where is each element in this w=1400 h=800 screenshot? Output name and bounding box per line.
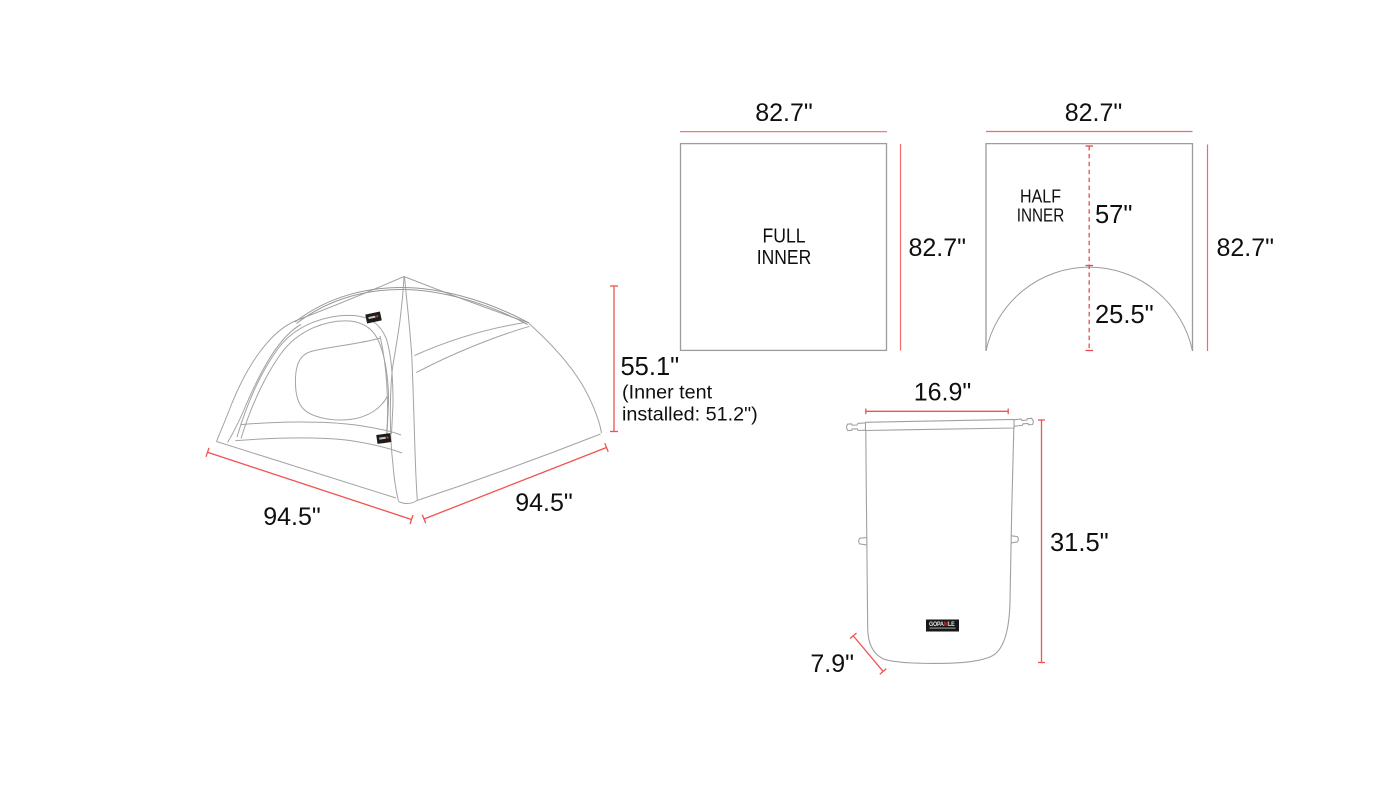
svg-text:31.5": 31.5" <box>1050 529 1109 557</box>
svg-text:82.7": 82.7" <box>909 234 967 262</box>
svg-text:82.7": 82.7" <box>755 99 813 127</box>
svg-text:FULL: FULL <box>763 226 806 248</box>
svg-text:(Inner tent: (Inner tent <box>622 382 713 404</box>
svg-text:82.7": 82.7" <box>1217 234 1275 262</box>
svg-text:installed: 51.2"): installed: 51.2") <box>622 403 758 425</box>
svg-text:INNER: INNER <box>1017 204 1065 225</box>
svg-text:57": 57" <box>1095 201 1132 229</box>
svg-text:94.5": 94.5" <box>515 489 573 517</box>
svg-text:25.5": 25.5" <box>1095 301 1154 329</box>
svg-text:7.9": 7.9" <box>810 650 854 678</box>
svg-text:94.5": 94.5" <box>263 503 321 531</box>
svg-text:GOPAMLE: GOPAMLE <box>929 621 955 628</box>
svg-text:55.1": 55.1" <box>621 353 680 381</box>
svg-text:INNER: INNER <box>757 247 812 269</box>
svg-text:82.7": 82.7" <box>1065 99 1123 127</box>
svg-text:16.9": 16.9" <box>914 379 972 407</box>
